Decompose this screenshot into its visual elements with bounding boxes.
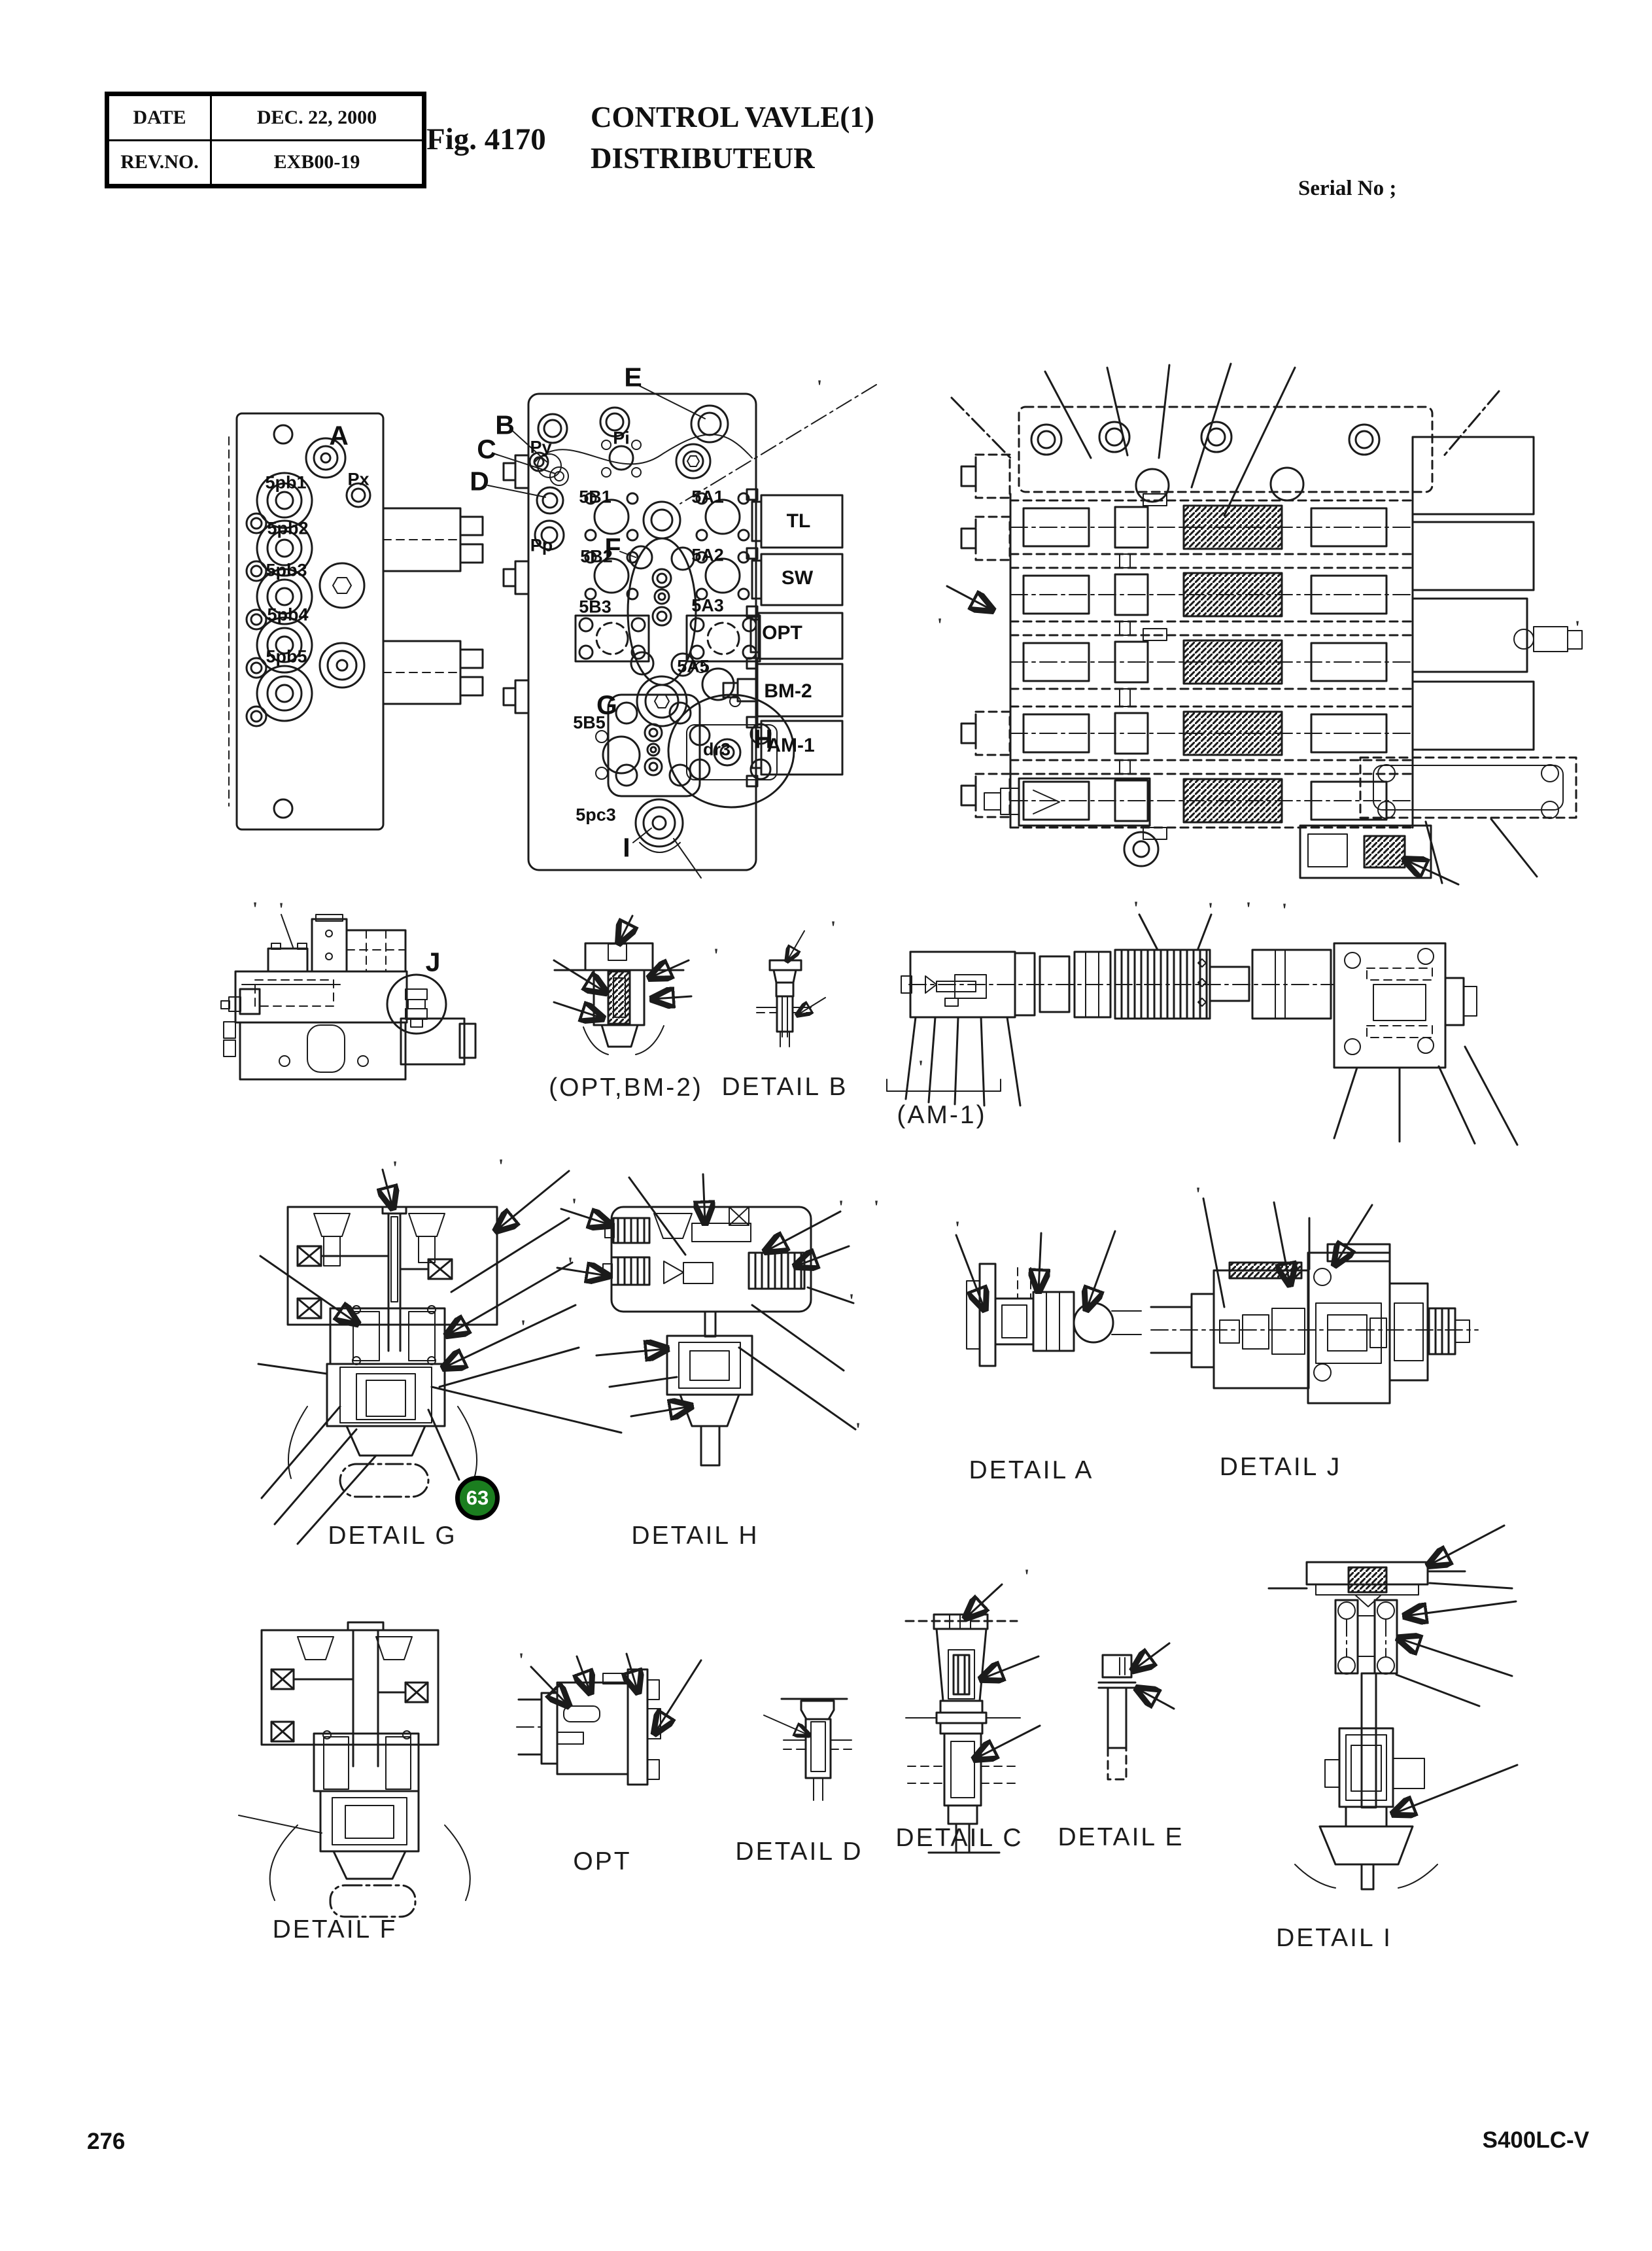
model-code: S400LC-V — [1483, 2127, 1589, 2154]
manual-page: DATE DEC. 22, 2000 REV.NO. EXB00-19 Fig.… — [0, 0, 1652, 2251]
drawing-detail-h — [557, 1174, 855, 1465]
drawing-detail-d — [764, 1699, 852, 1800]
drawing-detail-e — [1099, 1643, 1174, 1779]
callout-badge: 63 — [455, 1476, 500, 1520]
drawing-pilot-valve-side-view — [221, 915, 475, 1079]
drawing-detail-i — [1269, 1526, 1517, 1889]
drawing-detail-c — [906, 1584, 1040, 1853]
diagram-canvas — [0, 0, 1652, 2251]
drawing-detail-j — [1151, 1198, 1478, 1403]
drawing-detail-g — [258, 1170, 621, 1544]
page-number: 276 — [87, 2129, 125, 2155]
drawing-valve-side-view — [229, 413, 483, 829]
drawing-detail-b — [757, 931, 825, 1047]
drawing-valve-cross-section — [947, 364, 1582, 884]
drawing-detail-a — [956, 1231, 1141, 1366]
drawing-detail-f — [239, 1622, 470, 1917]
drawing-am1-spool-assembly — [887, 915, 1517, 1145]
drawing-valve-top-view — [488, 385, 876, 878]
drawing-opt-plug-section — [517, 1654, 701, 1785]
drawing-opt-bm2-section — [554, 916, 691, 1055]
